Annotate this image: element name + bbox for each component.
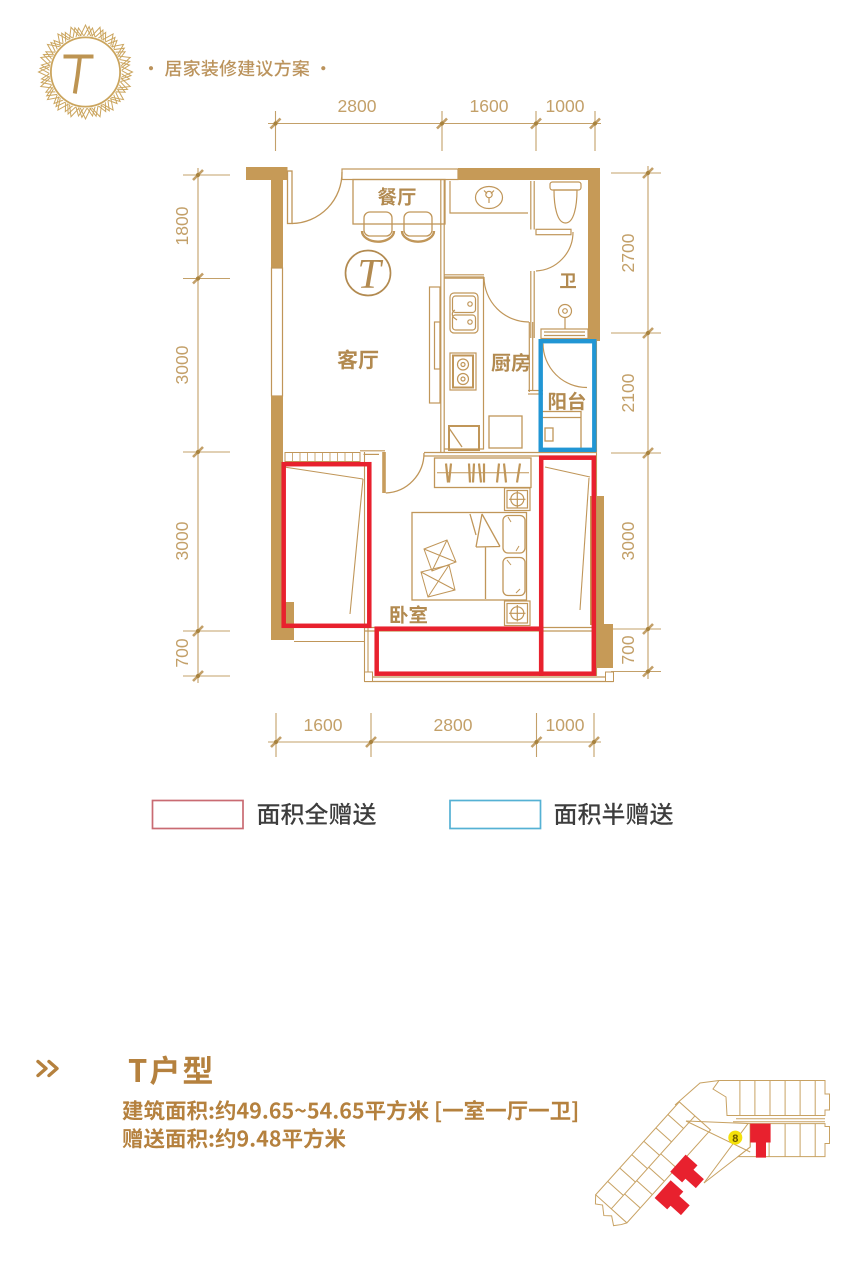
svg-text:3000: 3000 (172, 521, 192, 560)
svg-text:1600: 1600 (470, 96, 509, 116)
svg-text:3000: 3000 (618, 521, 638, 560)
svg-text:1000: 1000 (546, 96, 585, 116)
svg-text:1000: 1000 (546, 715, 585, 735)
svg-text:1600: 1600 (304, 715, 343, 735)
svg-text:2700: 2700 (618, 233, 638, 272)
svg-text:2800: 2800 (338, 96, 377, 116)
svg-text:2100: 2100 (618, 373, 638, 412)
svg-text:700: 700 (618, 635, 638, 664)
svg-text:8: 8 (732, 1133, 738, 1145)
svg-text:1800: 1800 (172, 206, 192, 245)
svg-text:T: T (357, 252, 383, 298)
svg-text:2800: 2800 (434, 715, 473, 735)
svg-text:700: 700 (172, 638, 192, 667)
svg-text:3000: 3000 (172, 345, 192, 384)
